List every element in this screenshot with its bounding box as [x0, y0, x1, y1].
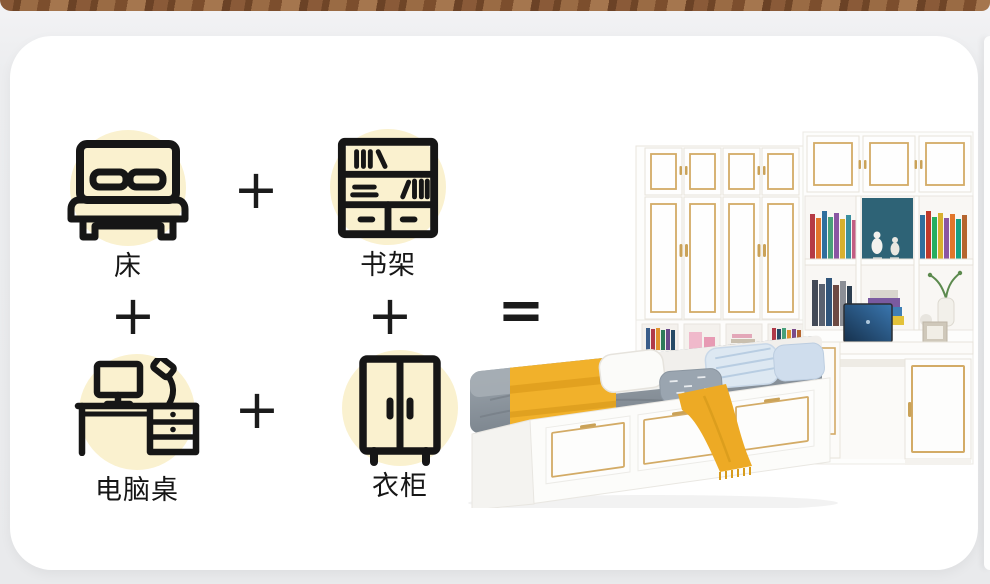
bed-icon [66, 138, 190, 242]
shelf-books [810, 211, 856, 259]
bed-drawer [546, 416, 630, 484]
equation-term-wardrobe: 衣柜 [330, 350, 470, 503]
picture-frame [923, 322, 947, 343]
result-furniture-photo [468, 118, 978, 508]
plus-operator: + [367, 289, 412, 343]
bookshelf-top-cabinets [807, 136, 971, 192]
bookshelf-accent-circle [330, 129, 446, 245]
plus-operator: + [234, 383, 279, 437]
equation-term-bed: 床 [58, 130, 198, 283]
wardrobe-icon [356, 352, 444, 468]
wardrobe-accent-circle [342, 350, 458, 466]
laptop [834, 304, 902, 347]
computer-desk-label: 电脑桌 [95, 473, 179, 507]
storage-bed [468, 335, 838, 508]
bed-label: 床 [114, 249, 142, 283]
desk-accent-circle [79, 354, 195, 470]
wardrobe-wall [636, 146, 806, 358]
bed-accent-circle [70, 130, 186, 246]
equation-term-bookshelf: 书架 [318, 129, 458, 282]
bookshelf-label: 书架 [360, 248, 416, 282]
plus-operator: + [110, 289, 155, 343]
wardrobe-label: 衣柜 [372, 469, 428, 503]
next-card-edge [984, 36, 990, 570]
shelf-decor-cubby [862, 198, 913, 259]
promo-banner: 床 + 书 [0, 0, 990, 584]
computer-desk-icon [74, 358, 200, 456]
bed-front-face [472, 420, 534, 508]
bookshelf-icon [334, 134, 442, 242]
equation-term-desk: 电脑桌 [67, 354, 207, 507]
plus-operator: + [233, 163, 278, 217]
wood-texture-strip [0, 0, 990, 11]
under-desk-cabinet [905, 359, 971, 465]
